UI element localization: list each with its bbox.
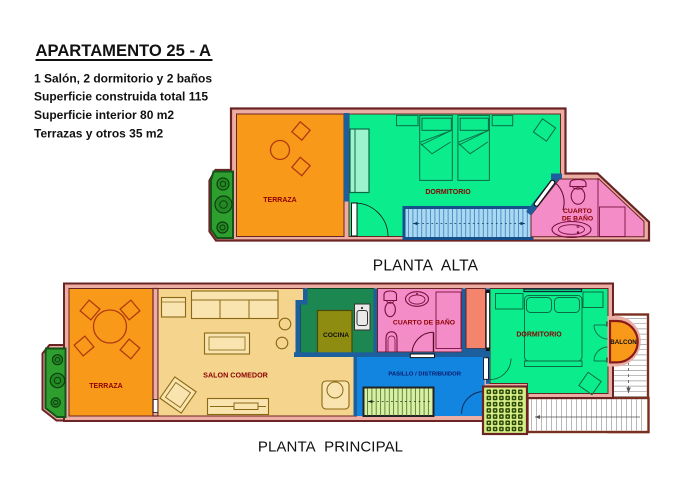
svg-text:CUARTO: CUARTO <box>563 208 592 215</box>
svg-text:APARTAMENTO 25 - A: APARTAMENTO 25 - A <box>36 41 211 60</box>
svg-text:Superficie construida total 11: Superficie construida total 115 <box>34 90 208 104</box>
svg-text:Superficie interior 80 m2: Superficie interior 80 m2 <box>34 108 174 122</box>
svg-text:PLANTA PRINCIPAL: PLANTA PRINCIPAL <box>258 439 403 456</box>
svg-text:Terrazas y otros 35 m2: Terrazas y otros 35 m2 <box>34 127 164 141</box>
svg-text:DORMITORIO: DORMITORIO <box>516 332 562 339</box>
svg-text:1 Salón, 2 dormitorio y 2 baño: 1 Salón, 2 dormitorio y 2 baños <box>34 72 212 86</box>
svg-text:PASILLO / DISTRIBUIDOR: PASILLO / DISTRIBUIDOR <box>388 372 461 378</box>
svg-text:TERRAZA: TERRAZA <box>89 383 122 390</box>
svg-text:DORMITORIO: DORMITORIO <box>425 189 471 196</box>
svg-text:CUARTO DE BAÑO: CUARTO DE BAÑO <box>393 318 455 327</box>
svg-text:DE BAÑO: DE BAÑO <box>562 214 593 223</box>
svg-text:PLANTA ALTA: PLANTA ALTA <box>373 258 479 275</box>
svg-text:TERRAZA: TERRAZA <box>263 197 296 204</box>
svg-text:SALON COMEDOR: SALON COMEDOR <box>203 371 268 380</box>
svg-text:COCINA: COCINA <box>323 332 349 339</box>
svg-text:BALCON: BALCON <box>610 339 637 346</box>
